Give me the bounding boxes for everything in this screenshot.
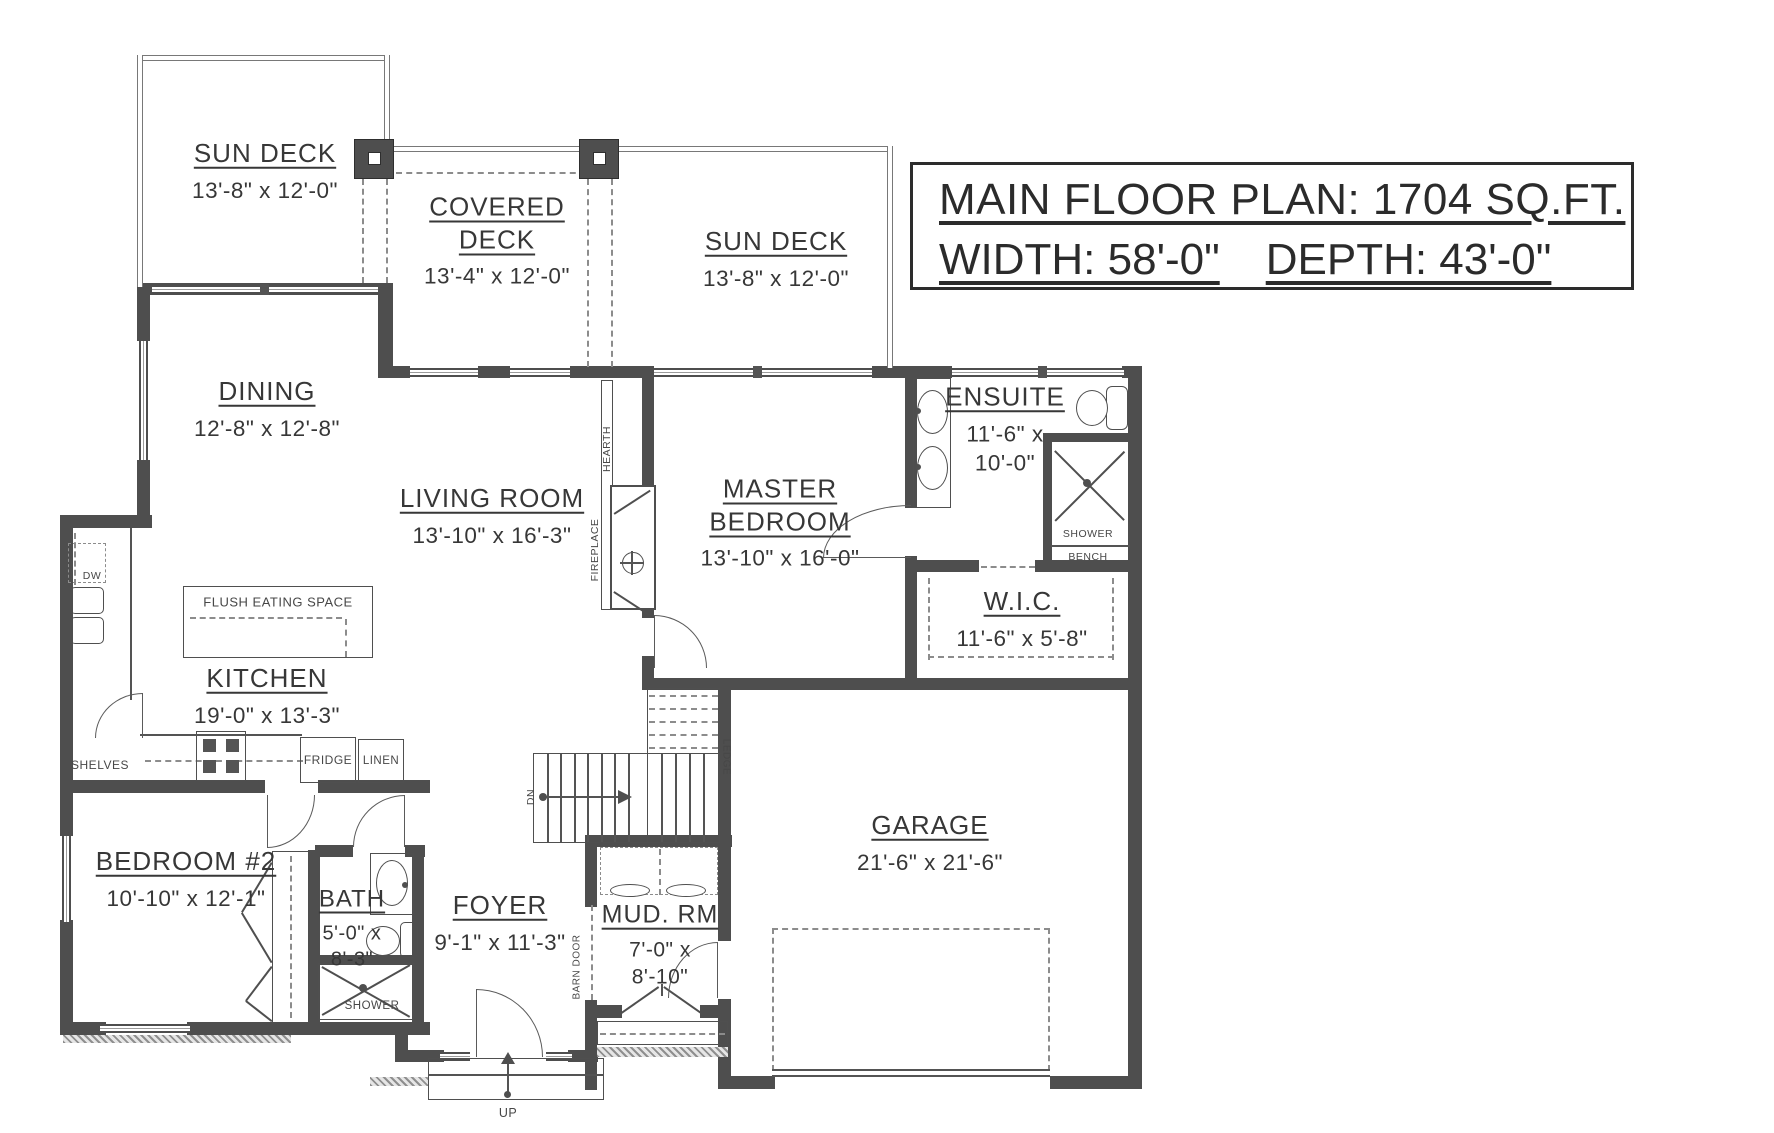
room-label-kitchen: KITCHEN 19'-0" x 13'-3" bbox=[194, 662, 340, 729]
stove-burner bbox=[203, 739, 216, 752]
thin-line bbox=[661, 754, 663, 842]
dashed-line bbox=[928, 656, 1114, 658]
room-label-sun-deck-right: SUN DECK 13'-8" x 12'-0" bbox=[703, 225, 849, 292]
room-label-garage: GARAGE 21'-6" x 21'-6" bbox=[857, 809, 1003, 876]
room-label-covered-deck: COVERED DECK 13'-4" x 12'-0" bbox=[410, 191, 585, 290]
symbol-dot bbox=[915, 408, 921, 414]
dashed-line bbox=[1112, 578, 1114, 660]
label-entry-up: UP bbox=[499, 1106, 517, 1120]
oval-fixture bbox=[917, 390, 948, 434]
room-label-foyer: FOYER 9'-1" x 11'-3" bbox=[434, 889, 565, 956]
dashed-line bbox=[981, 566, 1035, 568]
label-ledge: LEDGE bbox=[721, 739, 732, 775]
door-swing-front-entry bbox=[476, 989, 543, 1057]
room-dims: 13'-10" x 16'-0" bbox=[673, 545, 888, 572]
door-swing-pantry bbox=[95, 693, 143, 738]
room-label-bedroom2: BEDROOM #2 10'-10" x 12'-1" bbox=[96, 845, 277, 912]
room-name: GARAGE bbox=[857, 809, 1003, 842]
thin-line bbox=[545, 796, 623, 798]
door-swing-master bbox=[654, 615, 707, 668]
oval-fixture bbox=[610, 884, 650, 897]
label-dw: DW bbox=[83, 570, 102, 582]
window-mullion bbox=[753, 366, 762, 378]
deck-post-center bbox=[368, 152, 381, 165]
plan-depth: DEPTH: 43'-0" bbox=[1266, 235, 1552, 284]
dashed-line bbox=[587, 179, 589, 367]
room-name: MUD. RM bbox=[602, 900, 719, 931]
room-label-wic: W.I.C. 11'-6" x 5'-8" bbox=[956, 585, 1087, 652]
wall-segment bbox=[393, 366, 410, 378]
room-dims: 13'-8" x 12'-0" bbox=[192, 176, 338, 203]
dashed-line bbox=[386, 179, 388, 283]
hatch-strip bbox=[597, 1047, 728, 1057]
deck-railing bbox=[887, 146, 893, 368]
symbol-dot bbox=[539, 793, 547, 801]
dashed-line bbox=[1048, 928, 1050, 1071]
wall-segment bbox=[905, 556, 917, 690]
wall-segment bbox=[642, 656, 654, 690]
room-dims: 11'-6" x bbox=[945, 420, 1065, 447]
thin-line bbox=[703, 754, 705, 842]
wall-segment bbox=[917, 560, 979, 572]
deck-railing bbox=[137, 55, 390, 61]
rotated-line bbox=[241, 912, 272, 962]
oval-fixture bbox=[1076, 390, 1108, 426]
thin-line bbox=[631, 551, 633, 575]
wall-segment bbox=[718, 1076, 775, 1089]
rotated-line bbox=[246, 966, 273, 1001]
title-block: MAIN FLOOR PLAN: 1704 SQ.FT. WIDTH: 58'-… bbox=[910, 162, 1634, 290]
room-name: BEDROOM #2 bbox=[96, 845, 277, 878]
wall-segment bbox=[60, 515, 152, 528]
wall-segment bbox=[315, 845, 353, 857]
room-label-bath: BATH 5'-0" x 8'-3" bbox=[319, 885, 385, 972]
room-dims: 13'-8" x 12'-0" bbox=[703, 264, 849, 291]
sink-bowl bbox=[70, 617, 104, 644]
room-dims: 8'-3" bbox=[319, 948, 385, 972]
toilet-tank bbox=[400, 922, 418, 958]
fixture-outline bbox=[272, 851, 310, 1023]
door-opening bbox=[718, 941, 731, 999]
room-name: COVERED DECK bbox=[410, 191, 585, 256]
floor-plan: MAIN FLOOR PLAN: 1704 SQ.FT. WIDTH: 58'-… bbox=[0, 0, 1774, 1133]
rotated-line bbox=[246, 1000, 273, 1021]
room-dims: 7'-0" x bbox=[602, 938, 719, 963]
hatch-strip bbox=[63, 1035, 291, 1043]
window bbox=[100, 1024, 190, 1033]
label-hearth: HEARTH bbox=[601, 426, 613, 472]
stair-down-arrow-head bbox=[618, 790, 632, 804]
dashed-line bbox=[772, 928, 774, 1071]
label-flush-eating-space: FLUSH EATING SPACE bbox=[203, 595, 352, 610]
dashed-line bbox=[362, 179, 364, 283]
toilet-tank bbox=[1106, 386, 1128, 430]
room-dims: 12'-8" x 12'-8" bbox=[194, 414, 340, 441]
symbol-dot bbox=[402, 882, 408, 888]
dashed-line bbox=[611, 179, 613, 367]
room-dims: 9'-1" x 11'-3" bbox=[434, 928, 565, 955]
deck-railing bbox=[615, 146, 893, 152]
room-name: ENSUITE bbox=[945, 380, 1065, 413]
fixture-outline bbox=[647, 688, 720, 843]
symbol-dot bbox=[915, 464, 921, 470]
wall-segment bbox=[137, 283, 150, 341]
label-shower-ensuite: SHOWER bbox=[1063, 528, 1113, 540]
window bbox=[510, 368, 570, 377]
entry-up-arrow-head bbox=[501, 1052, 515, 1064]
label-fridge: FRIDGE bbox=[304, 753, 352, 767]
rotated-line bbox=[620, 986, 659, 1014]
label-shelves: SHELVES bbox=[71, 758, 129, 772]
symbol-dot bbox=[504, 1091, 511, 1098]
dashed-line bbox=[396, 172, 586, 174]
window bbox=[654, 368, 872, 377]
room-dims: 21'-6" x 21'-6" bbox=[857, 848, 1003, 875]
room-dims: 8'-10" bbox=[602, 965, 719, 990]
wall-segment bbox=[378, 283, 393, 378]
label-barn-door: BARN DOOR bbox=[572, 934, 583, 999]
thin-line bbox=[560, 754, 562, 842]
thin-line bbox=[130, 528, 132, 700]
room-name: SUN DECK bbox=[703, 225, 849, 258]
fixture-outline bbox=[597, 1021, 728, 1045]
wall-segment bbox=[60, 788, 73, 836]
door-swing-bath bbox=[353, 795, 405, 847]
oval-fixture bbox=[666, 884, 706, 897]
sink-bowl bbox=[70, 587, 104, 614]
wall-segment bbox=[1128, 366, 1142, 1088]
room-name: BATH bbox=[319, 885, 385, 915]
thin-line bbox=[547, 754, 549, 842]
label-shower-bath: SHOWER bbox=[345, 1000, 400, 1012]
fireplace-niche bbox=[610, 485, 656, 610]
room-name: MASTER BEDROOM bbox=[673, 473, 888, 538]
label-stairs-dn: DN bbox=[525, 789, 537, 805]
stove-burner bbox=[226, 760, 239, 773]
fixture-outline bbox=[428, 1058, 604, 1100]
room-name: LIVING ROOM bbox=[400, 482, 584, 515]
plan-title: MAIN FLOOR PLAN: 1704 SQ.FT. bbox=[939, 175, 1631, 225]
room-dims: 19'-0" x 13'-3" bbox=[194, 701, 340, 728]
wall-segment bbox=[585, 845, 597, 907]
stove-burner bbox=[203, 760, 216, 773]
room-label-master-bedroom: MASTER BEDROOM 13'-10" x 16'-0" bbox=[673, 473, 888, 572]
room-dims: 13'-10" x 16'-3" bbox=[400, 521, 584, 548]
thin-line bbox=[689, 754, 691, 842]
window-mullion bbox=[260, 284, 269, 295]
wall-segment bbox=[592, 1005, 622, 1018]
wall-segment bbox=[700, 1005, 730, 1018]
plan-width: WIDTH: 58'-0" bbox=[939, 235, 1220, 284]
wall-segment bbox=[570, 366, 654, 378]
dashed-line bbox=[928, 578, 930, 660]
room-name: KITCHEN bbox=[194, 662, 340, 695]
wall-segment bbox=[60, 920, 73, 1035]
window bbox=[139, 341, 148, 460]
label-fireplace: FIREPLACE bbox=[589, 519, 601, 582]
wall-segment bbox=[872, 366, 952, 378]
room-name: W.I.C. bbox=[956, 585, 1087, 618]
wall-segment bbox=[1050, 1076, 1142, 1089]
deck-railing bbox=[137, 55, 143, 287]
wall-segment bbox=[478, 366, 510, 378]
stove-burner bbox=[226, 739, 239, 752]
room-name: FOYER bbox=[434, 889, 565, 922]
room-dims: 13'-4" x 12'-0" bbox=[410, 263, 585, 290]
thin-line bbox=[428, 1074, 604, 1076]
deck-railing bbox=[384, 55, 390, 151]
dashed-line bbox=[591, 905, 593, 1000]
room-name: DINING bbox=[194, 375, 340, 408]
room-label-mud-room: MUD. RM 7'-0" x 8'-10" bbox=[602, 900, 719, 991]
room-dims: 11'-6" x 5'-8" bbox=[956, 624, 1087, 651]
window-mullion bbox=[1038, 366, 1047, 378]
room-label-ensuite: ENSUITE 11'-6" x 10'-0" bbox=[945, 380, 1065, 476]
thin-line bbox=[772, 1075, 1050, 1077]
plan-dimensions: WIDTH: 58'-0"DEPTH: 43'-0" bbox=[939, 235, 1631, 285]
window bbox=[62, 836, 71, 922]
thin-line bbox=[675, 754, 677, 842]
thin-line bbox=[587, 754, 589, 842]
oval-fixture bbox=[917, 446, 948, 490]
thin-line bbox=[601, 754, 603, 842]
deck-post-center bbox=[593, 152, 606, 165]
thin-line bbox=[772, 1069, 1050, 1071]
label-linen: LINEN bbox=[363, 755, 399, 767]
dashed-line bbox=[772, 928, 1050, 930]
thin-line bbox=[614, 754, 616, 842]
room-label-living-room: LIVING ROOM 13'-10" x 16'-3" bbox=[400, 482, 584, 549]
room-label-sun-deck-left: SUN DECK 13'-8" x 12'-0" bbox=[192, 137, 338, 204]
deck-railing bbox=[391, 146, 587, 152]
thin-line bbox=[574, 754, 576, 842]
room-label-dining: DINING 12'-8" x 12'-8" bbox=[194, 375, 340, 442]
room-name: SUN DECK bbox=[192, 137, 338, 170]
wall-segment bbox=[60, 780, 265, 793]
room-dims: 5'-0" x bbox=[319, 922, 385, 946]
thin-line bbox=[140, 734, 302, 736]
door-swing-bedroom2 bbox=[267, 795, 315, 848]
room-dims: 10'-0" bbox=[945, 449, 1065, 476]
room-dims: 10'-10" x 12'-1" bbox=[96, 884, 277, 911]
thin-line bbox=[1051, 545, 1130, 547]
label-bench: BENCH bbox=[1068, 551, 1107, 563]
hatch-strip bbox=[370, 1077, 428, 1086]
window bbox=[410, 368, 478, 377]
